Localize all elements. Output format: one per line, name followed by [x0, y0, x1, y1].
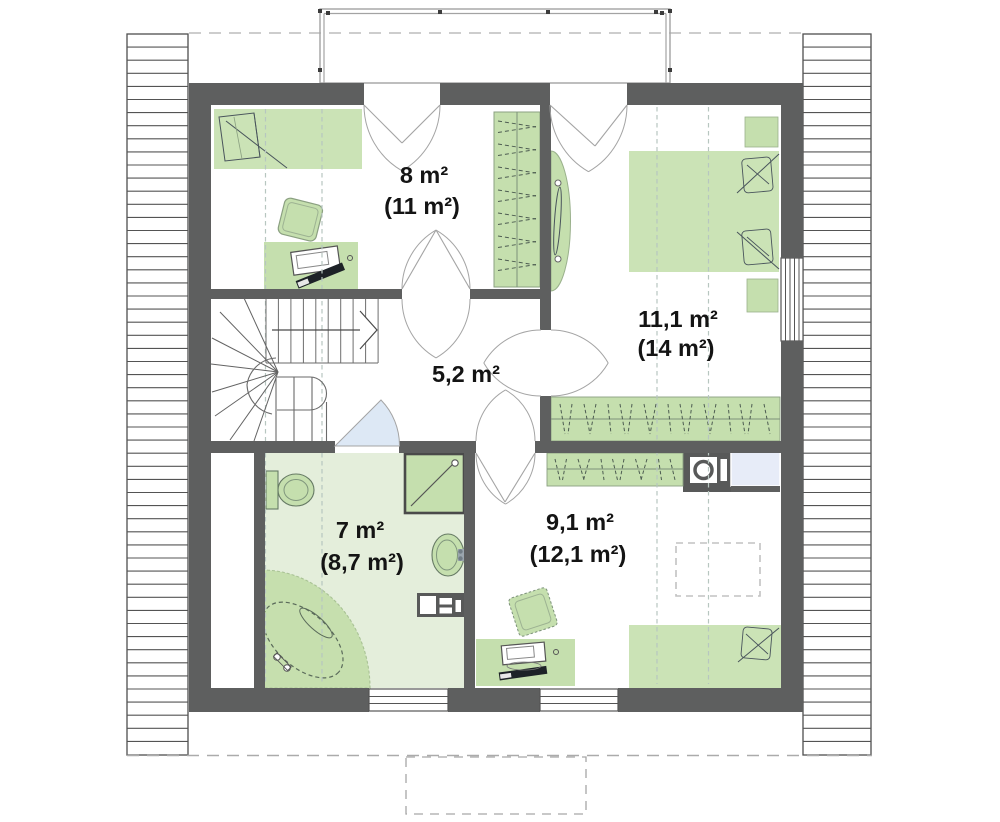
svg-text:7 m²: 7 m² [336, 517, 384, 543]
svg-text:11,1 m²: 11,1 m² [638, 306, 718, 332]
svg-text:(8,7 m²): (8,7 m²) [320, 549, 404, 575]
svg-text:(12,1 m²): (12,1 m²) [530, 541, 627, 567]
svg-text:8 m²: 8 m² [400, 162, 448, 188]
svg-text:5,2 m²: 5,2 m² [432, 361, 500, 387]
svg-text:(11 m²): (11 m²) [384, 193, 460, 219]
svg-text:(14 m²): (14 m²) [637, 335, 714, 361]
svg-text:9,1 m²: 9,1 m² [546, 509, 614, 535]
